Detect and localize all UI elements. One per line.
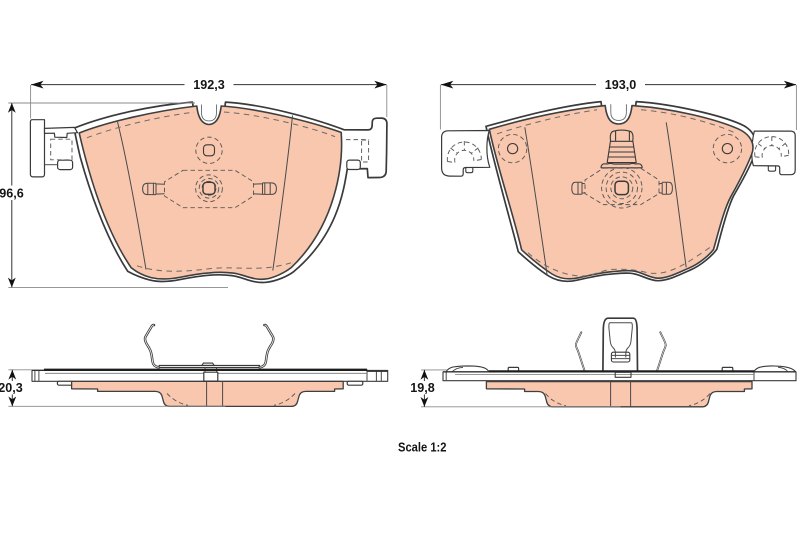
svg-text:193,0: 193,0	[605, 78, 637, 92]
svg-text:192,3: 192,3	[193, 78, 225, 92]
svg-text:Scale 1:2: Scale 1:2	[398, 441, 447, 455]
svg-text:19,8: 19,8	[410, 381, 435, 395]
svg-text:20,3: 20,3	[0, 381, 23, 395]
svg-text:96,6: 96,6	[0, 186, 24, 200]
